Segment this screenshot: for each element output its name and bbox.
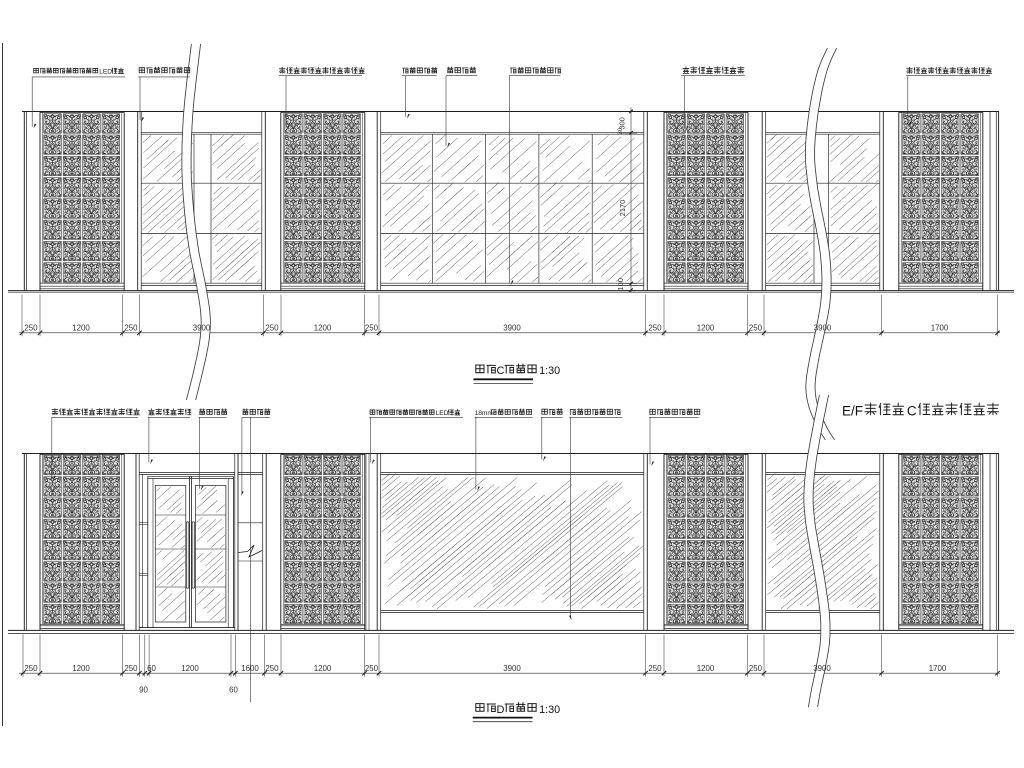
svg-text:1:30: 1:30	[539, 704, 560, 716]
svg-text:E/F: E/F	[842, 404, 863, 419]
svg-text:250: 250	[648, 664, 662, 673]
svg-text:1200: 1200	[72, 323, 90, 332]
svg-text:250: 250	[749, 323, 763, 332]
svg-text:LED: LED	[436, 410, 449, 417]
svg-text:3900: 3900	[814, 323, 832, 332]
svg-text:60: 60	[229, 686, 238, 695]
svg-text:250: 250	[24, 323, 38, 332]
svg-text:18mm: 18mm	[475, 410, 494, 417]
svg-text:1200: 1200	[72, 664, 90, 673]
svg-text:2170: 2170	[618, 200, 627, 217]
svg-text:250: 250	[124, 664, 138, 673]
svg-text:1200: 1200	[314, 664, 332, 673]
svg-text:3900: 3900	[503, 664, 521, 673]
svg-text:3900: 3900	[193, 323, 211, 332]
svg-text:3900: 3900	[813, 664, 831, 673]
svg-text:1700: 1700	[929, 664, 947, 673]
svg-text:250: 250	[24, 664, 38, 673]
svg-text:30: 30	[617, 127, 624, 135]
svg-text:250: 250	[365, 664, 379, 673]
svg-text:1200: 1200	[181, 664, 199, 673]
svg-text:250: 250	[365, 323, 379, 332]
svg-text:1200: 1200	[314, 323, 332, 332]
svg-text:LED: LED	[99, 68, 112, 75]
svg-text:1:30: 1:30	[539, 365, 560, 377]
svg-text:1700: 1700	[931, 323, 949, 332]
svg-text:D: D	[497, 704, 505, 716]
svg-text:250: 250	[648, 323, 662, 332]
svg-text:C: C	[497, 365, 505, 377]
svg-text:C: C	[907, 404, 917, 419]
svg-text:250: 250	[265, 323, 279, 332]
svg-text:3900: 3900	[503, 323, 521, 332]
svg-text:100: 100	[616, 278, 625, 291]
svg-text:250: 250	[265, 664, 279, 673]
svg-text:250: 250	[749, 664, 763, 673]
svg-text:250: 250	[124, 323, 138, 332]
svg-text:60: 60	[147, 664, 156, 673]
svg-text:90: 90	[139, 686, 148, 695]
svg-text:1200: 1200	[697, 664, 715, 673]
svg-text:1200: 1200	[697, 323, 715, 332]
